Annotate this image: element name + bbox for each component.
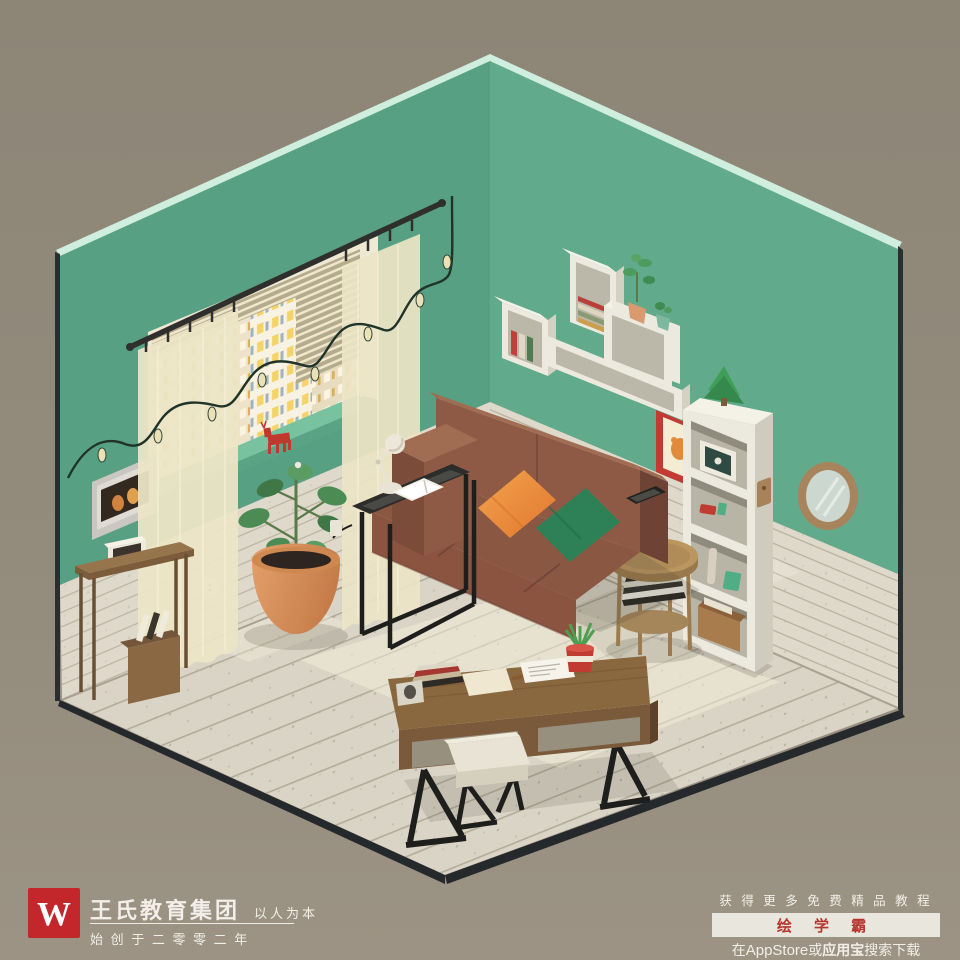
promo-headline: 获 得 更 多 免 费 精 品 教 程: [712, 890, 940, 909]
brand-divider: [90, 923, 294, 924]
curtain-right: [342, 234, 420, 632]
room-illustration: [0, 0, 960, 960]
outlet-icon: [330, 520, 342, 536]
app-name: 绘 学 霸: [777, 918, 875, 935]
dl-appstore: AppStore: [746, 942, 809, 959]
founded-line: 始 创 于 二 零 零 二 年: [90, 929, 249, 948]
portrait-card: [396, 680, 424, 706]
promo-block: 获 得 更 多 免 费 精 品 教 程 绘 学 霸 在AppStore或应用宝搜…: [712, 890, 940, 960]
company-slogan: 以人为本: [254, 903, 318, 922]
wall-key-holder: [757, 477, 771, 508]
company-logo: W: [28, 888, 80, 938]
company-name: 王氏教育集团: [90, 893, 240, 925]
flower: [295, 462, 301, 468]
dl-or: 或: [808, 942, 822, 958]
app-name-bar: 绘 学 霸: [712, 913, 940, 937]
dl-suffix: 搜索下载: [864, 942, 920, 958]
download-instructions: 在AppStore或应用宝搜索下载: [712, 940, 940, 960]
mirror-icon: [798, 462, 858, 530]
dl-store: 应用宝: [822, 942, 864, 958]
logo-letter: W: [37, 896, 71, 933]
tall-shelf-unit: [683, 366, 773, 678]
company-row: 王氏教育集团 以人为本: [90, 893, 318, 925]
poster: W 王氏教育集团 以人为本 始 创 于 二 零 零 二 年 获 得 更 多 免 …: [0, 0, 960, 960]
dl-prefix: 在: [732, 942, 746, 958]
